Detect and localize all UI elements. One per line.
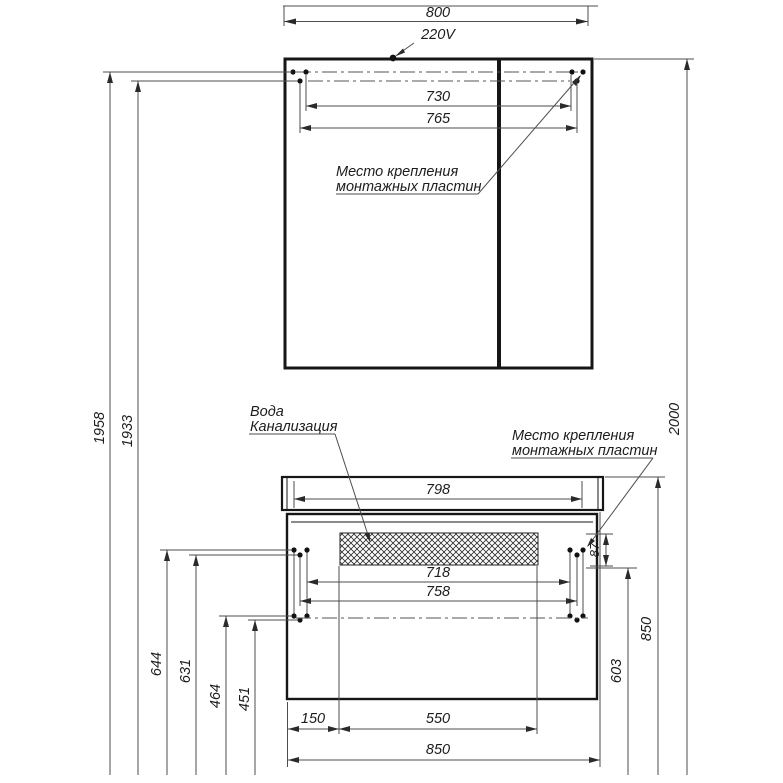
mirror-mounting-note: Место крепления монтажных пластин [336, 75, 581, 195]
dim-451-label: 451 [237, 687, 253, 711]
power-callout: 220V [390, 27, 457, 61]
sewer-label: Канализация [250, 419, 338, 435]
dim-height-644: 644 [149, 550, 292, 775]
dim-850-bottom-label: 850 [426, 742, 450, 758]
dim-550-label: 550 [426, 711, 450, 727]
dim-603-label: 603 [609, 659, 625, 683]
dim-vanity-top: 798 [294, 481, 582, 508]
vanity-note-line2: монтажных пластин [512, 443, 657, 459]
dim-height-850: 850 [605, 477, 665, 775]
dim-height-451: 451 [237, 620, 298, 775]
dim-1933-label: 1933 [120, 415, 136, 447]
dim-1958-label: 1958 [92, 412, 108, 444]
dim-644-label: 644 [149, 652, 165, 676]
dim-765-label: 765 [426, 111, 451, 127]
power-point [390, 55, 397, 62]
vanity-mounting-note: Место крепления монтажных пластин [511, 428, 657, 547]
dim-718-label: 718 [426, 565, 450, 581]
cabinet-door-divider [497, 59, 501, 368]
mirror-note-line2: монтажных пластин [336, 179, 481, 195]
vanity-note-line1: Место крепления [512, 428, 634, 444]
dim-mirror-holes-inner: 730 [306, 75, 571, 111]
dim-2000-label: 2000 [667, 403, 683, 436]
dim-850-right-label: 850 [639, 617, 655, 641]
dim-730-label: 730 [426, 89, 450, 105]
dim-800-label: 800 [426, 5, 450, 21]
dim-798-label: 798 [426, 482, 450, 498]
dim-height-631: 631 [178, 555, 298, 775]
dim-mirror-width: 800 [283, 5, 598, 26]
dim-631-label: 631 [178, 659, 194, 683]
power-label: 220V [420, 27, 456, 43]
dim-758-label: 758 [426, 584, 450, 600]
dim-464-label: 464 [208, 684, 224, 708]
water-label: Вода [250, 404, 284, 420]
dim-height-603: 603 [586, 568, 637, 775]
utility-note: Вода Канализация [249, 404, 370, 542]
mirror-cabinet-outline [285, 59, 592, 368]
mirror-note-line1: Место крепления [336, 164, 458, 180]
technical-drawing-canvas: 800 220V 730 765 Место крепления монтажн… [0, 0, 783, 783]
dim-150-label: 150 [301, 711, 325, 727]
installation-diagram: 800 220V 730 765 Место крепления монтажн… [0, 0, 783, 783]
